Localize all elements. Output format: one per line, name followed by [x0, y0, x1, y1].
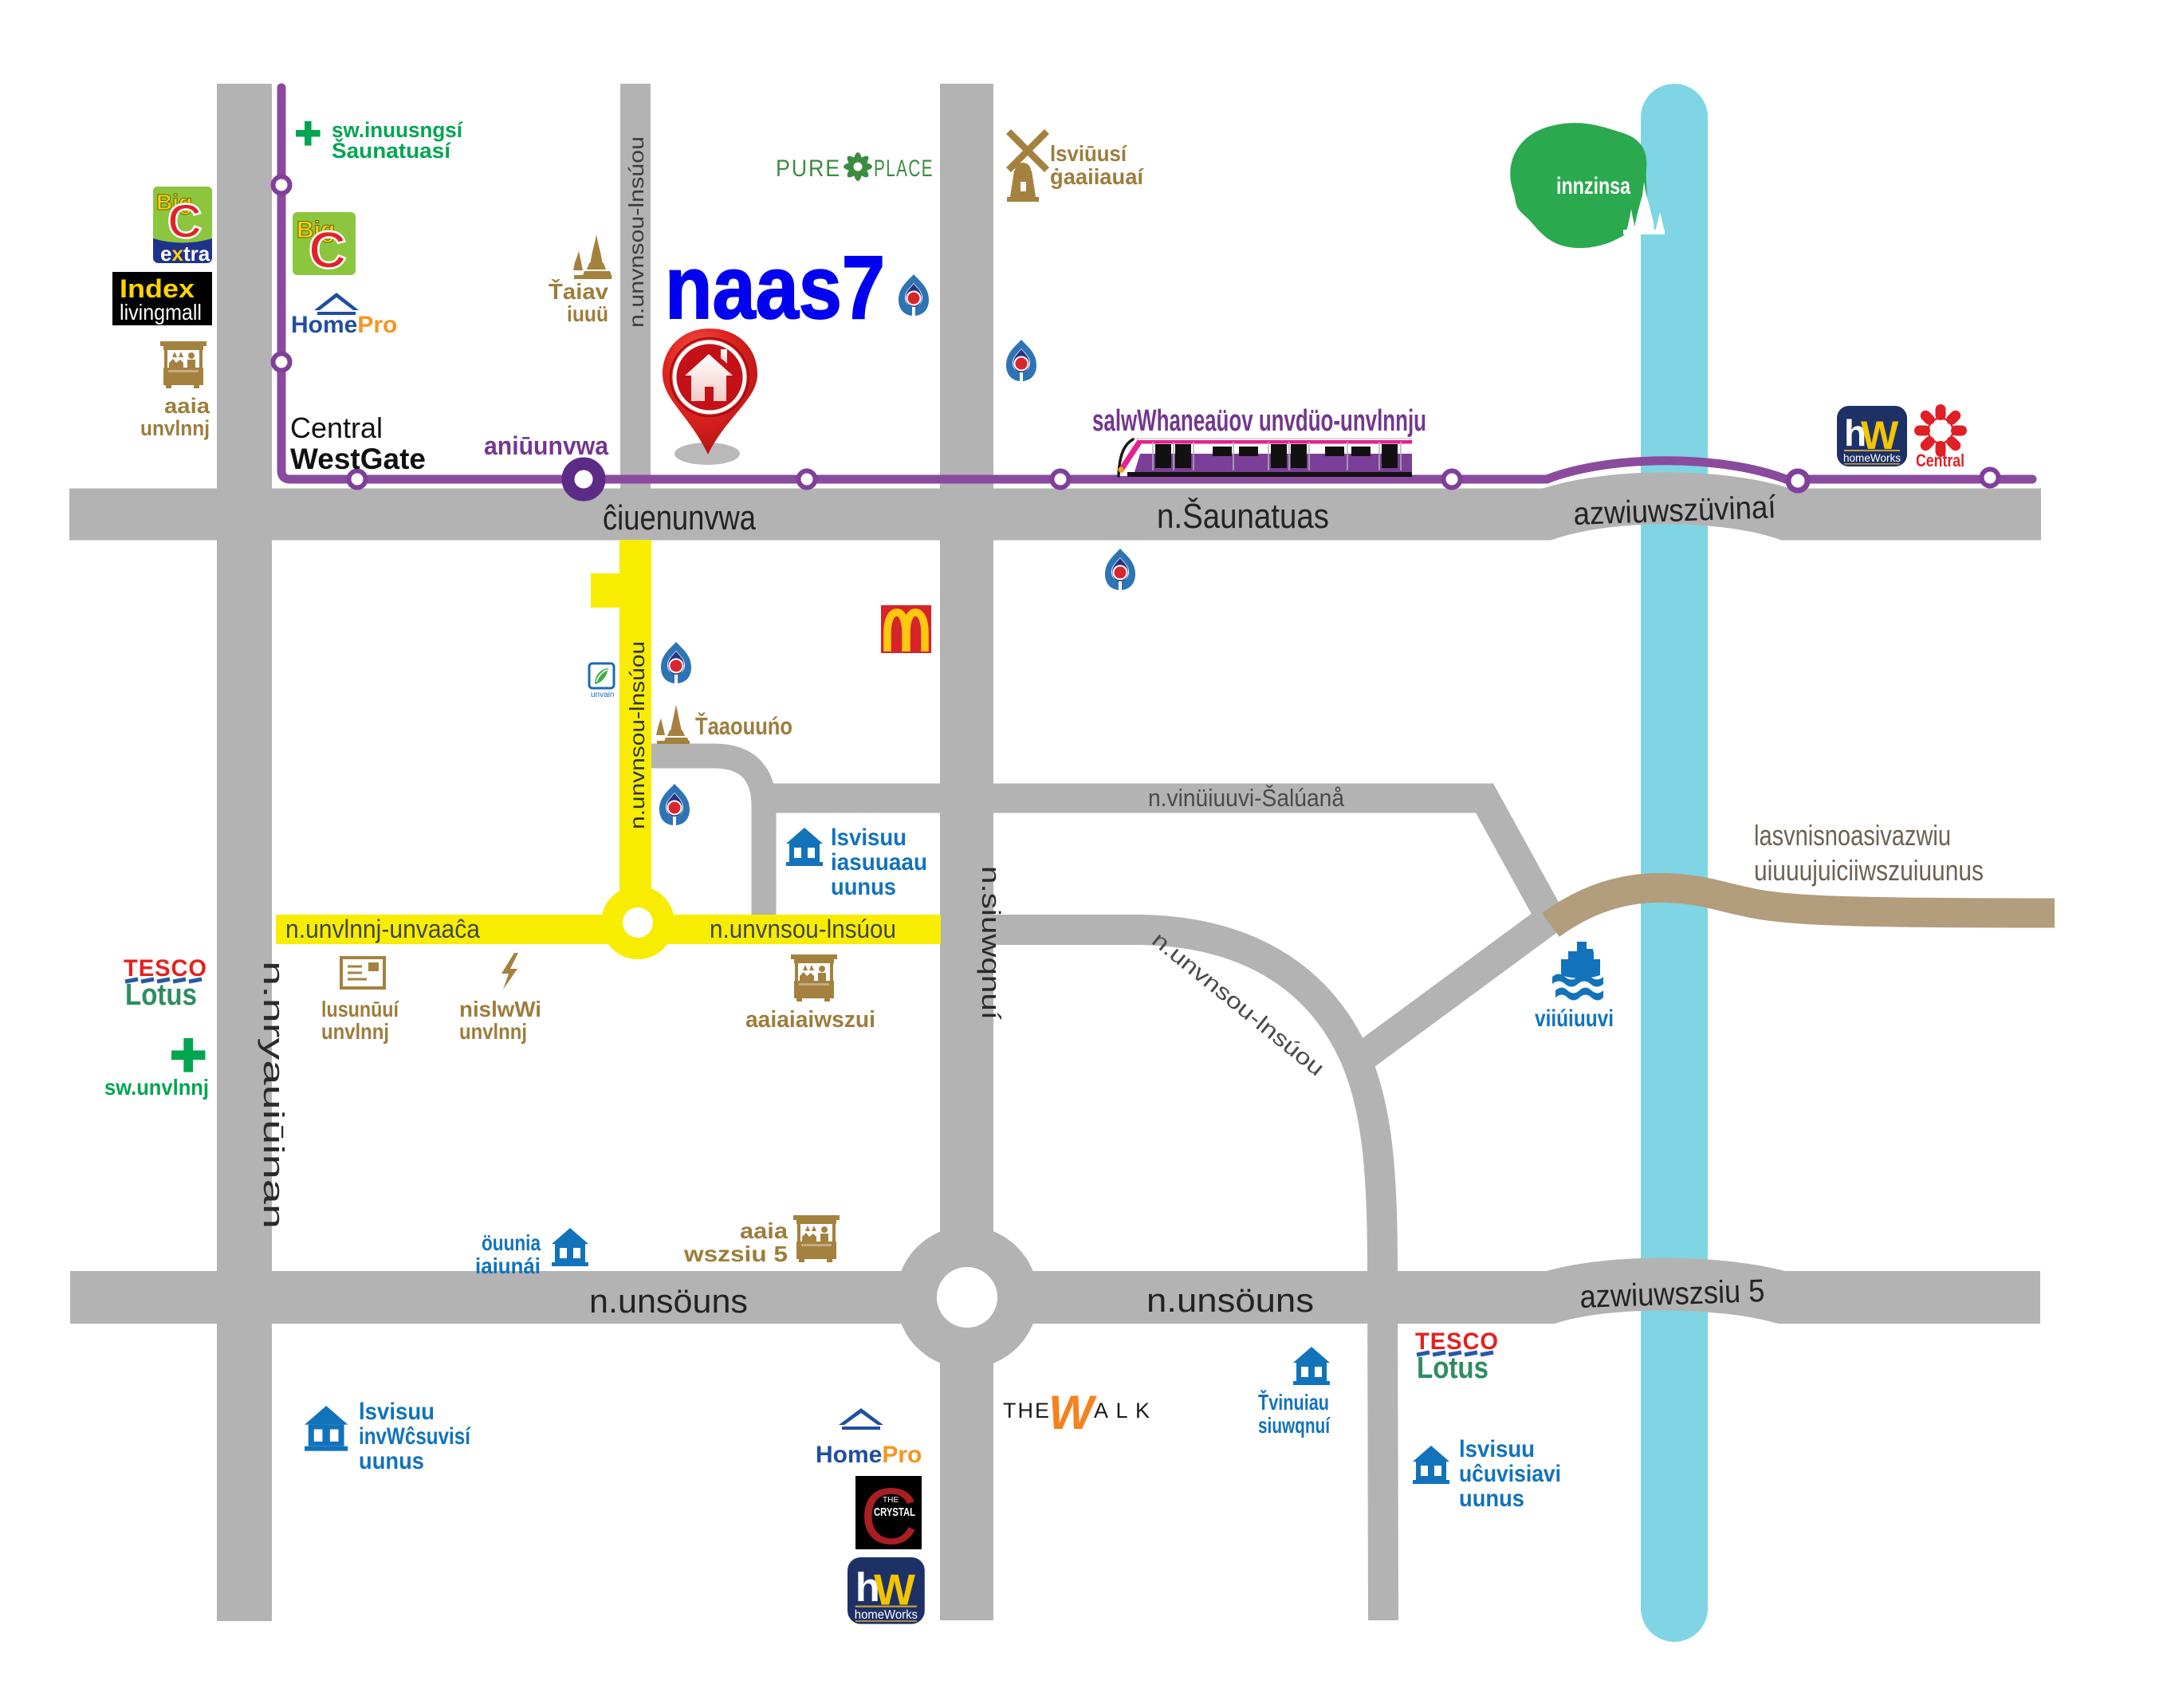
- svg-text:invWĉsuvisí: invWĉsuvisí: [359, 1423, 471, 1450]
- svg-text:n.unvnsou-lnsúou: n.unvnsou-lnsúou: [624, 136, 648, 328]
- svg-text:PURE: PURE: [776, 155, 841, 182]
- svg-text:ĉiuenunvwa: ĉiuenunvwa: [603, 498, 756, 537]
- svg-text:THE: THE: [883, 1496, 899, 1505]
- svg-text:iuuü: iuuü: [567, 301, 608, 326]
- svg-text:n.vinüiuuvi-Šalúanå: n.vinüiuuvi-Šalúanå: [1148, 784, 1345, 812]
- svg-text:CRYSTAL: CRYSTAL: [874, 1505, 915, 1519]
- svg-text:aaia: aaia: [164, 394, 210, 418]
- svg-text:W: W: [1048, 1386, 1097, 1439]
- svg-text:aniūunvwa: aniūunvwa: [484, 431, 608, 460]
- svg-text:iasuuaau: iasuuaau: [831, 849, 927, 876]
- svg-text:lsviūusí: lsviūusí: [1050, 141, 1127, 166]
- svg-text:extra: extra: [160, 242, 210, 266]
- svg-text:uiuuujuiciiwszuiuunus: uiuuujuiciiwszuiuunus: [1754, 854, 1984, 887]
- svg-text:salwWhaneaüov unvdüo-unvlnnju: salwWhaneaüov unvdüo-unvlnnju: [1092, 404, 1426, 438]
- svg-text:Ťvinuiau: Ťvinuiau: [1258, 1390, 1329, 1415]
- svg-text:livingmall: livingmall: [120, 300, 202, 325]
- svg-text:unvain: unvain: [591, 691, 614, 699]
- svg-text:lsvisuu: lsvisuu: [1459, 1436, 1535, 1462]
- svg-text:n.nryauiūinan: n.nryauiūinan: [258, 961, 290, 1229]
- svg-text:lasvnisnoasivazwiu: lasvnisnoasivazwiu: [1754, 819, 1951, 852]
- svg-text:uĉuvisiavi: uĉuvisiavi: [1459, 1461, 1561, 1487]
- svg-text:uunus: uunus: [831, 874, 896, 900]
- svg-text:aaia: aaia: [740, 1218, 788, 1243]
- svg-text:n.unsöuns: n.unsöuns: [589, 1282, 748, 1320]
- svg-text:n.siuwqnuí: n.siuwqnuí: [977, 866, 1005, 1020]
- svg-text:unvlnnj: unvlnnj: [459, 1019, 527, 1044]
- svg-text:HomePro: HomePro: [816, 1442, 922, 1468]
- svg-text:Central: Central: [1916, 451, 1964, 470]
- svg-text:azwiuwszsiu 5: azwiuwszsiu 5: [1579, 1273, 1765, 1315]
- svg-text:n.unsöuns: n.unsöuns: [1146, 1281, 1314, 1319]
- svg-text:viiúiuuvi: viiúiuuvi: [1535, 1006, 1614, 1032]
- svg-text:aaiaiaiwszui: aaiaiaiwszui: [745, 1007, 875, 1033]
- svg-text:ġaaiiauaí: ġaaiiauaí: [1050, 164, 1144, 189]
- svg-text:lsvisuu: lsvisuu: [831, 824, 906, 851]
- svg-text:unvlnnj: unvlnnj: [321, 1019, 389, 1044]
- svg-text:lusunūuí: lusunūuí: [321, 997, 399, 1021]
- svg-text:lsvisuu: lsvisuu: [359, 1399, 435, 1425]
- svg-text:Šaunatuasí: Šaunatuasí: [332, 138, 452, 163]
- svg-text:siuwqnuí: siuwqnuí: [1258, 1413, 1331, 1438]
- svg-text:uunus: uunus: [359, 1448, 424, 1474]
- svg-text:naas7: naas7: [665, 238, 885, 337]
- svg-text:uunus: uunus: [1459, 1486, 1524, 1512]
- svg-text:öuunia: öuunia: [482, 1230, 541, 1255]
- svg-text:Ťaiav: Ťaiav: [549, 279, 608, 304]
- svg-text:THE: THE: [1003, 1399, 1049, 1423]
- svg-text:Ťaaouuńo: Ťaaouuńo: [695, 711, 792, 740]
- svg-text:n.unvnsou-lnsúou: n.unvnsou-lnsúou: [625, 641, 649, 829]
- svg-text:innzinsa: innzinsa: [1556, 173, 1630, 199]
- svg-text:n.unvnsou-lnsúou: n.unvnsou-lnsúou: [710, 915, 896, 943]
- svg-text:n.Šaunatuas: n.Šaunatuas: [1157, 496, 1329, 536]
- svg-text:HomePro: HomePro: [291, 312, 397, 338]
- svg-text:WestGate: WestGate: [290, 443, 426, 475]
- svg-text:iaiunái: iaiunái: [475, 1253, 541, 1278]
- svg-text:sw.unvlnnj: sw.unvlnnj: [104, 1075, 209, 1100]
- svg-text:unvlnnj: unvlnnj: [140, 416, 210, 440]
- svg-text:ALK: ALK: [1094, 1399, 1150, 1423]
- svg-text:nislwWi: nislwWi: [459, 997, 541, 1021]
- svg-text:C: C: [167, 195, 202, 248]
- svg-text:n.unvlnnj-unvaaĉa: n.unvlnnj-unvaaĉa: [285, 915, 480, 943]
- svg-text:wszsiu 5: wszsiu 5: [683, 1242, 788, 1266]
- svg-text:Central: Central: [290, 411, 383, 444]
- svg-text:azwiuwszüvinaí: azwiuwszüvinaí: [1573, 490, 1776, 532]
- svg-text:Index: Index: [120, 274, 195, 303]
- svg-text:PLACE: PLACE: [874, 155, 934, 182]
